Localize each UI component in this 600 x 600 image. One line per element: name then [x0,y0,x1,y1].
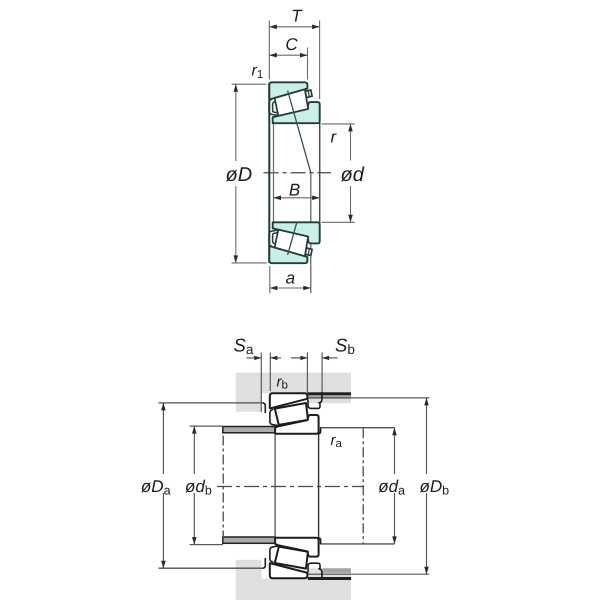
svg-text:øD: øD [226,164,253,186]
svg-text:a: a [286,269,295,288]
svg-text:B: B [289,180,300,199]
svg-text:T: T [291,7,303,26]
svg-text:ød: ød [341,164,365,186]
svg-text:C: C [285,35,298,54]
